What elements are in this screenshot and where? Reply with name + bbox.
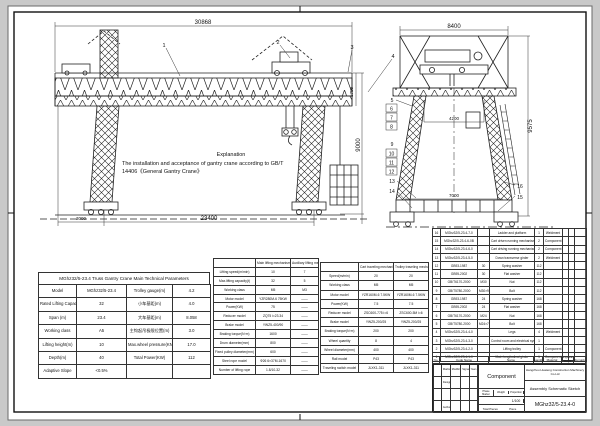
callout-2: 2 [276, 40, 279, 46]
phase-weight-proportion-row: Phase Marker Weight Proportion [479, 389, 525, 397]
table-cell: Ladder and platform [490, 229, 535, 237]
table-cell: Φ26 6×37M-1670 [256, 356, 291, 365]
table-cell: 168 [535, 320, 544, 328]
table-cell: Legs [490, 328, 535, 336]
table-cell [544, 270, 563, 278]
bom-header-weight: Single Piece Total Weight [562, 356, 574, 364]
front-tower [88, 30, 120, 78]
table-cell: Fixed pulley diameter(mm) [214, 347, 256, 356]
table-cell: 32 [256, 276, 291, 285]
table-cell: 5 [291, 276, 319, 285]
table-cell: —— [291, 312, 319, 321]
callout-9: 9 [391, 142, 394, 148]
table-cell: Brake model [214, 321, 256, 330]
table-cell [434, 389, 442, 401]
table-cell: Depth(m) [39, 351, 77, 364]
parts-list-header: No. Code Name Name Quantity Material Sin… [432, 356, 586, 364]
table-cell: Model [39, 285, 77, 298]
table-cell: Span (m) [39, 311, 77, 324]
table-cell [544, 287, 563, 295]
table-cell: Max.wheel pressure(KN) [127, 338, 173, 351]
table-cell: Down transverse girder [490, 253, 535, 261]
table-cell: Motor model [321, 290, 359, 299]
table-cell: 200 [359, 327, 394, 336]
table-cell [544, 320, 563, 328]
table-cell: Cart traveling mechanism [359, 263, 394, 272]
weight-label: Weight [494, 391, 509, 394]
table-cell: Weldment [544, 229, 563, 237]
table-cell: Flat washer [490, 270, 535, 278]
table-cell [478, 328, 490, 336]
callout-16: 16 [517, 184, 523, 190]
table-cell [575, 287, 587, 295]
bom-header-remark: Remark [574, 356, 586, 364]
table-cell [478, 336, 490, 344]
table-cell: MGhz32/5-23.4-6-0 [441, 245, 478, 253]
table-cell: 168 [535, 303, 544, 311]
table-cell [469, 401, 477, 413]
table-cell [478, 229, 490, 237]
table-cell: 7.5 [394, 299, 429, 308]
bom-header-code: Code Name [440, 356, 489, 364]
bom-header-weight-label: Weight [564, 361, 571, 363]
table-cell [544, 311, 563, 319]
dim-side-bottom: 7000 [449, 193, 460, 198]
explanation-title: Explanation [122, 151, 340, 160]
table-cell: 10 [433, 278, 441, 286]
table-cell: Reducer model [321, 308, 359, 317]
table-cell: Working class [321, 281, 359, 290]
table-cell [544, 295, 563, 303]
front-girder [55, 73, 352, 106]
table-cell: 4.0 [173, 298, 211, 311]
callout-1: 1 [162, 43, 165, 49]
table-cell: 24 [478, 295, 490, 303]
table-cell: M30 [478, 278, 490, 286]
table-cell: Nut [490, 278, 535, 286]
table-cell: —— [291, 321, 319, 330]
table-cell: 6 [433, 311, 441, 319]
table-cell: Trolley gauge(m) [127, 285, 173, 298]
table-cell: M24×70 [478, 320, 490, 328]
table-cell: 16 [433, 229, 441, 237]
table-cell: 4 [535, 328, 544, 336]
table-cell: 15 [433, 237, 441, 245]
table-cell: 800 [256, 339, 291, 348]
table-cell: 200 [394, 327, 429, 336]
doc-type-cell: Component [479, 365, 525, 389]
callout-15: 15 [517, 195, 523, 201]
table-cell: Power(KW) [321, 299, 359, 308]
table-cell: 75 [256, 303, 291, 312]
table-cell: —— [291, 356, 319, 365]
table-cell [575, 336, 587, 344]
table-cell: 大车基距(m) [127, 311, 173, 324]
table-cell: 168 [535, 295, 544, 303]
table-cell: Rated Lifting Capacity(t) [39, 298, 77, 311]
side-top-frame [400, 36, 508, 88]
table-cell: 24 [478, 303, 490, 311]
table-cell: 2 [535, 237, 544, 245]
traveling-mechanism-table: Cart traveling mechanismTrolley travelin… [320, 262, 428, 373]
table-cell: 5 [433, 320, 441, 328]
table-cell: 2 [433, 345, 441, 353]
table-cell: Year-Month-Day [469, 365, 477, 376]
bom-header-no: No. [432, 356, 440, 364]
table-cell [214, 259, 256, 268]
table-cell: Trolley traveling mechanism [394, 263, 429, 272]
table-cell [127, 365, 173, 378]
table-cell: Power(KW) [214, 303, 256, 312]
table-cell: Modification [450, 365, 461, 376]
table-cell: Cart driven running mechanism [490, 237, 535, 245]
table-cell: Lifting height(m) [39, 338, 77, 351]
callout-10: 10 [389, 152, 395, 158]
table-cell: Control room and electrical system [490, 336, 535, 344]
table-cell: —— [291, 330, 319, 339]
table-cell: ZSC600-5M i=6 [394, 308, 429, 317]
table-cell: 小车基距(m) [127, 298, 173, 311]
parameters-table-title: MGhz32/5-23.4 Truss Gantry Crane Main Te… [38, 272, 210, 284]
explanation-note: Explanation The installation and accepta… [122, 151, 340, 177]
table-cell: 4 [394, 336, 429, 345]
dim-side-right: 9575 [528, 119, 534, 133]
table-cell: 30 [478, 270, 490, 278]
table-cell [544, 278, 563, 286]
table-cell [434, 401, 442, 413]
table-cell: —— [291, 365, 319, 374]
table-cell: 主钩起吊极限位置(m) [127, 325, 173, 338]
table-cell [434, 376, 442, 388]
total-pieces-row: Total Pieces Piece [479, 405, 525, 413]
table-cell: MGhz32/5-23.4-3-0 [441, 336, 478, 344]
table-cell: Max.lifting capacity(t) [214, 276, 256, 285]
table-cell: YZR160M-6 7.5KW [359, 290, 394, 299]
table-cell: 23.4 [77, 311, 127, 324]
front-view [40, 30, 370, 219]
table-cell: 8.058 [173, 311, 211, 324]
table-cell: Steel rope model [214, 356, 256, 365]
table-cell: M30×90 [478, 287, 490, 295]
table-cell: Bolt [490, 287, 535, 295]
table-cell [461, 376, 469, 388]
table-cell [575, 295, 587, 303]
table-cell: Spring washer [490, 295, 535, 303]
table-cell: <0.5% [77, 365, 127, 378]
table-cell: 112 [535, 287, 544, 295]
table-cell: Working class [39, 325, 77, 338]
table-cell: Auxiliary lifting mechanism [291, 259, 319, 268]
table-cell: MGhz32/5-23.4 [77, 285, 127, 298]
table-cell: GB/T6170-2000 [441, 311, 478, 319]
callout-4: 4 [391, 54, 394, 60]
table-cell: Wheel diameter(mm) [321, 345, 359, 354]
table-cell [575, 253, 587, 261]
lifting-table-grid: Main lifting mechanismAuxiliary lifting … [213, 258, 319, 375]
table-cell: Reducer model [214, 312, 256, 321]
table-cell: A5 [77, 325, 127, 338]
table-cell: 3 [433, 336, 441, 344]
table-cell [544, 336, 563, 344]
table-cell: GB/T6170-2000 [441, 278, 478, 286]
table-cell: Designed [441, 376, 450, 388]
table-cell [575, 311, 587, 319]
scale-value: 1/100 [509, 399, 524, 403]
table-cell: Lifting trolley [490, 345, 535, 353]
callout-11: 11 [389, 161, 394, 167]
dim-front-top: 30868 [195, 20, 212, 26]
dim-front-left: 3000 [76, 216, 87, 221]
table-cell: M3 [291, 285, 319, 294]
table-cell: Bolt [490, 320, 535, 328]
table-cell: 400 [394, 345, 429, 354]
company-name-cell: Hangzhou Huateng Construction Machinery … [525, 365, 586, 381]
table-cell [461, 389, 469, 401]
front-end-carriage [62, 64, 90, 75]
dim-front-bottom: 23400 [201, 216, 218, 222]
table-cell: 4 [433, 328, 441, 336]
callout-12: 12 [389, 170, 395, 176]
table-cell: 9 [433, 287, 441, 295]
table-cell: 112 [535, 270, 544, 278]
table-cell: Brake model [321, 318, 359, 327]
dim-side-center: 4200 [449, 116, 460, 121]
table-cell: GB93-1987 [441, 295, 478, 303]
table-cell: Flat washer [490, 303, 535, 311]
table-cell: Nut [490, 311, 535, 319]
table-cell: 112 [535, 278, 544, 286]
scale-row: 1/100 [479, 397, 525, 405]
table-cell: JLXK1-311 [394, 364, 429, 373]
callout-13: 13 [389, 179, 395, 185]
table-cell: Braking torque(N·m) [214, 330, 256, 339]
callout-8: 8 [390, 125, 393, 131]
table-cell: 600 [256, 347, 291, 356]
table-cell [173, 365, 211, 378]
table-cell: Number of lifting rope [214, 365, 256, 374]
table-cell: YWZ5-200/25 [394, 318, 429, 327]
table-cell [450, 376, 461, 388]
table-cell [450, 401, 461, 413]
table-cell [575, 245, 587, 253]
table-cell [478, 245, 490, 253]
table-cell: 14 [433, 245, 441, 253]
table-cell: 20 [359, 272, 394, 281]
bom-header-material: Material [543, 356, 562, 364]
table-cell [441, 389, 450, 401]
table-cell: 1 [535, 229, 544, 237]
table-cell: YWZ5-400/90 [256, 321, 291, 330]
title-block: MarksModificationSignatureYear-Month-Day… [432, 364, 586, 412]
table-cell [575, 237, 587, 245]
table-cell: Component [544, 245, 563, 253]
sheet-name-cell: Assembly Schematic Sketch [525, 381, 586, 397]
table-cell: 112 [535, 262, 544, 270]
callout-7: 7 [390, 116, 393, 122]
table-cell: Cart driving running mechanism [490, 245, 535, 253]
table-cell: 7 [433, 303, 441, 311]
table-cell: 8 [359, 336, 394, 345]
table-cell: Total Power(KW) [127, 351, 173, 364]
drawing-number-cell: MGhz32/5-23.4-0 [525, 397, 586, 413]
table-cell: Speed(m/min) [321, 272, 359, 281]
table-cell: Working class [214, 285, 256, 294]
table-cell [575, 229, 587, 237]
table-cell: 11 [433, 270, 441, 278]
table-cell: 20 [394, 272, 429, 281]
table-cell [478, 345, 490, 353]
table-cell: 10 [77, 338, 127, 351]
bom-header-qty: Quantity [534, 356, 543, 364]
table-cell: 168 [535, 311, 544, 319]
parts-list-grid: 16MGhz32/5-23.4-7-0Ladder and platform1W… [432, 228, 587, 362]
table-cell: 3.0 [173, 325, 211, 338]
table-cell: GB95-2002 [441, 303, 478, 311]
table-cell [575, 270, 587, 278]
table-cell: Signature [461, 365, 469, 376]
table-cell: 400 [359, 345, 394, 354]
table-cell: YZR280M-6 75KW [256, 294, 291, 303]
table-cell: Rail model [321, 354, 359, 363]
table-cell: M5 [256, 285, 291, 294]
table-cell: M5 [359, 281, 394, 290]
table-cell: Weldment [544, 253, 563, 261]
callout-6: 6 [390, 107, 393, 113]
bom-header-name: Name [489, 356, 534, 364]
table-cell: MGhz32/5-23.4-2-0 [441, 345, 478, 353]
table-cell: 4.2 [173, 285, 211, 298]
table-cell: MGhz32/5-23.4-7-0 [441, 229, 478, 237]
table-cell: GB/T5780-2000 [441, 287, 478, 295]
table-cell: 40 [77, 351, 127, 364]
lifting-mechanism-table: Main lifting mechanismAuxiliary lifting … [213, 258, 318, 375]
table-cell: Adaptive Slope [39, 365, 77, 378]
table-cell: M24 [478, 311, 490, 319]
table-cell [575, 303, 587, 311]
table-cell: GB93-1987 [441, 262, 478, 270]
table-cell: 13 [433, 253, 441, 261]
table-cell: ZQ75 i=23.34 [256, 312, 291, 321]
table-cell: Authorize [441, 401, 450, 413]
table-cell [575, 328, 587, 336]
table-cell: P43 [394, 354, 429, 363]
table-cell [575, 345, 587, 353]
table-cell: Weldment [544, 328, 563, 336]
side-platform [393, 88, 516, 96]
front-trolley [252, 36, 312, 76]
table-cell: GB95-2002 [441, 270, 478, 278]
table-cell: Traveling switch model [321, 364, 359, 373]
table-cell: 2 [535, 253, 544, 261]
front-hook-block [282, 106, 298, 145]
table-cell [469, 389, 477, 401]
main-parameters-table: MGhz32/5-23.4 Truss Gantry Crane Main Te… [38, 272, 210, 379]
table-cell: Spring washer [490, 262, 535, 270]
piece-label: Piece [502, 407, 525, 411]
table-cell: MGhz32/5-23.4-5-0 [441, 253, 478, 261]
dim-front-depth: 1750 [349, 86, 354, 97]
table-cell: 1.8/10-32 [256, 365, 291, 374]
table-cell: Braking torque(N·m) [321, 327, 359, 336]
dim-front-right: 9000 [356, 138, 362, 152]
table-cell: —— [291, 339, 319, 348]
table-cell: ZSC600-775 i=6 [359, 308, 394, 317]
table-cell: MGhz32/5-23.4-4-0 [441, 328, 478, 336]
table-cell [575, 262, 587, 270]
table-cell: 1 [535, 345, 544, 353]
table-cell [450, 389, 461, 401]
callout-14: 14 [389, 189, 395, 195]
table-cell [434, 365, 442, 376]
title-block-signature-grid: MarksModificationSignatureYear-Month-Day… [433, 365, 479, 413]
table-cell: 7 [291, 267, 319, 276]
table-cell [321, 263, 359, 272]
callout-5: 5 [391, 98, 394, 104]
table-cell [544, 262, 563, 270]
table-cell: 112 [173, 351, 211, 364]
table-cell: Component [544, 237, 563, 245]
side-bottom-girder [390, 200, 518, 226]
table-cell: 32 [77, 298, 127, 311]
table-cell: Wheel quantity [321, 336, 359, 345]
table-cell: M5 [394, 281, 429, 290]
table-cell: 1600 [256, 330, 291, 339]
table-cell [461, 401, 469, 413]
table-cell: JLXK1-311 [359, 364, 394, 373]
table-cell [575, 278, 587, 286]
table-cell: 1 [535, 336, 544, 344]
signature-grid-table: MarksModificationSignatureYear-Month-Day… [433, 365, 478, 413]
table-cell [478, 253, 490, 261]
callout-3: 3 [350, 45, 353, 51]
table-cell: 7.5 [359, 299, 394, 308]
table-cell [575, 320, 587, 328]
table-cell: YZR160M-6 7.5KW [394, 290, 429, 299]
table-cell: Component [544, 345, 563, 353]
table-cell: 8 [433, 295, 441, 303]
table-cell: Marks [441, 365, 450, 376]
side-electric-box [466, 112, 480, 128]
table-cell: Main lifting mechanism [256, 259, 291, 268]
dim-side-top: 8400 [447, 24, 461, 30]
parts-list-table: 16MGhz32/5-23.4-7-0Ladder and platform1W… [432, 228, 586, 362]
table-cell: Motor model [214, 294, 256, 303]
table-cell: 12 [433, 262, 441, 270]
table-cell [469, 376, 477, 388]
table-cell: —— [291, 303, 319, 312]
parameters-table-grid: ModelMGhz32/5-23.4Trolley gauge(m)4.2Rat… [38, 284, 211, 379]
table-cell: 2 [535, 245, 544, 253]
table-cell [544, 303, 563, 311]
table-cell: MGhz32/5-23.4-6-0B [441, 237, 478, 245]
table-cell: YWZ5-200/25 [359, 318, 394, 327]
table-cell: 17.0 [173, 338, 211, 351]
table-cell: —— [291, 347, 319, 356]
table-cell: P43 [359, 354, 394, 363]
table-cell: Lifting speed(m/min) [214, 267, 256, 276]
explanation-line2: 14406《General Gantry Crane》 [122, 168, 340, 177]
table-cell: 10 [256, 267, 291, 276]
table-cell: GB/T5780-2000 [441, 320, 478, 328]
table-cell: —— [291, 294, 319, 303]
phase-marker-label: Phase Marker [479, 390, 494, 396]
traveling-table-grid: Cart traveling mechanismTrolley travelin… [320, 262, 429, 373]
table-cell: 30 [478, 262, 490, 270]
table-cell: Drum diameter(mm) [214, 339, 256, 348]
explanation-line1: The installation and acceptance of gantr… [122, 160, 340, 169]
proportion-label: Proportion [509, 391, 524, 394]
total-pieces-label: Total Pieces [479, 407, 502, 411]
